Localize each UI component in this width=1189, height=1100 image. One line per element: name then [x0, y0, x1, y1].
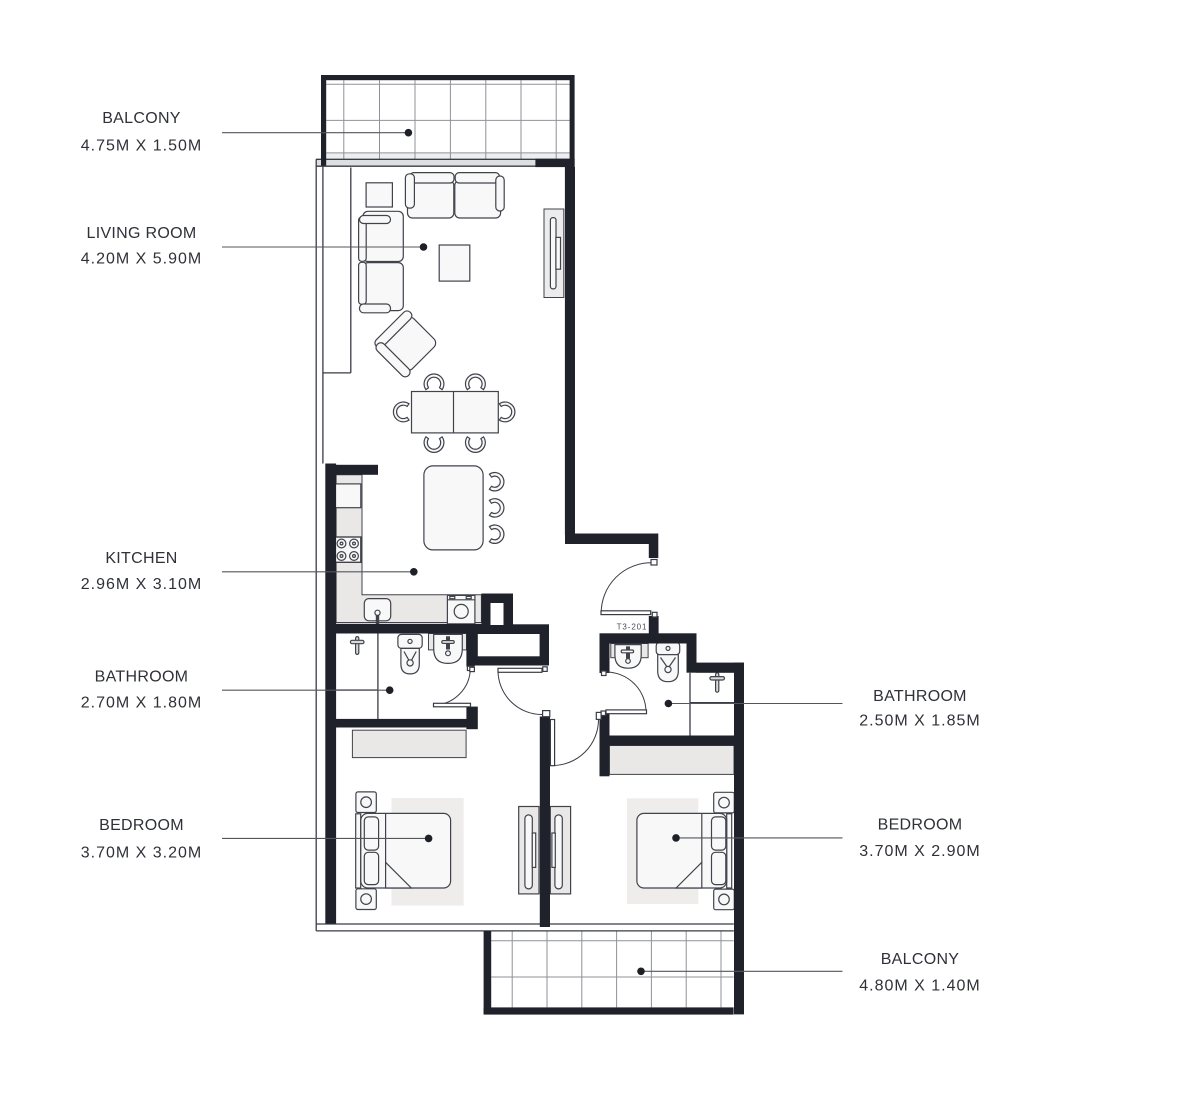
svg-text:2.50M X 1.85M: 2.50M X 1.85M [859, 712, 981, 729]
svg-text:4.80M X 1.40M: 4.80M X 1.40M [859, 977, 981, 994]
svg-text:BALCONY: BALCONY [881, 951, 960, 968]
svg-text:BALCONY: BALCONY [102, 110, 181, 127]
svg-text:BATHROOM: BATHROOM [95, 668, 189, 685]
svg-text:KITCHEN: KITCHEN [105, 550, 177, 567]
svg-text:3.70M X 3.20M: 3.70M X 3.20M [81, 844, 203, 861]
svg-text:LIVING ROOM: LIVING ROOM [87, 225, 197, 242]
svg-text:BEDROOM: BEDROOM [99, 817, 184, 834]
svg-text:2.96M X 3.10M: 2.96M X 3.10M [81, 576, 203, 593]
svg-text:4.20M X 5.90M: 4.20M X 5.90M [81, 250, 203, 267]
svg-text:BEDROOM: BEDROOM [878, 817, 963, 834]
svg-text:T3-201: T3-201 [617, 622, 648, 631]
svg-text:2.70M X 1.80M: 2.70M X 1.80M [81, 694, 203, 711]
svg-text:3.70M X 2.90M: 3.70M X 2.90M [859, 843, 981, 860]
svg-text:4.75M X 1.50M: 4.75M X 1.50M [81, 137, 203, 154]
svg-text:BATHROOM: BATHROOM [873, 688, 967, 705]
